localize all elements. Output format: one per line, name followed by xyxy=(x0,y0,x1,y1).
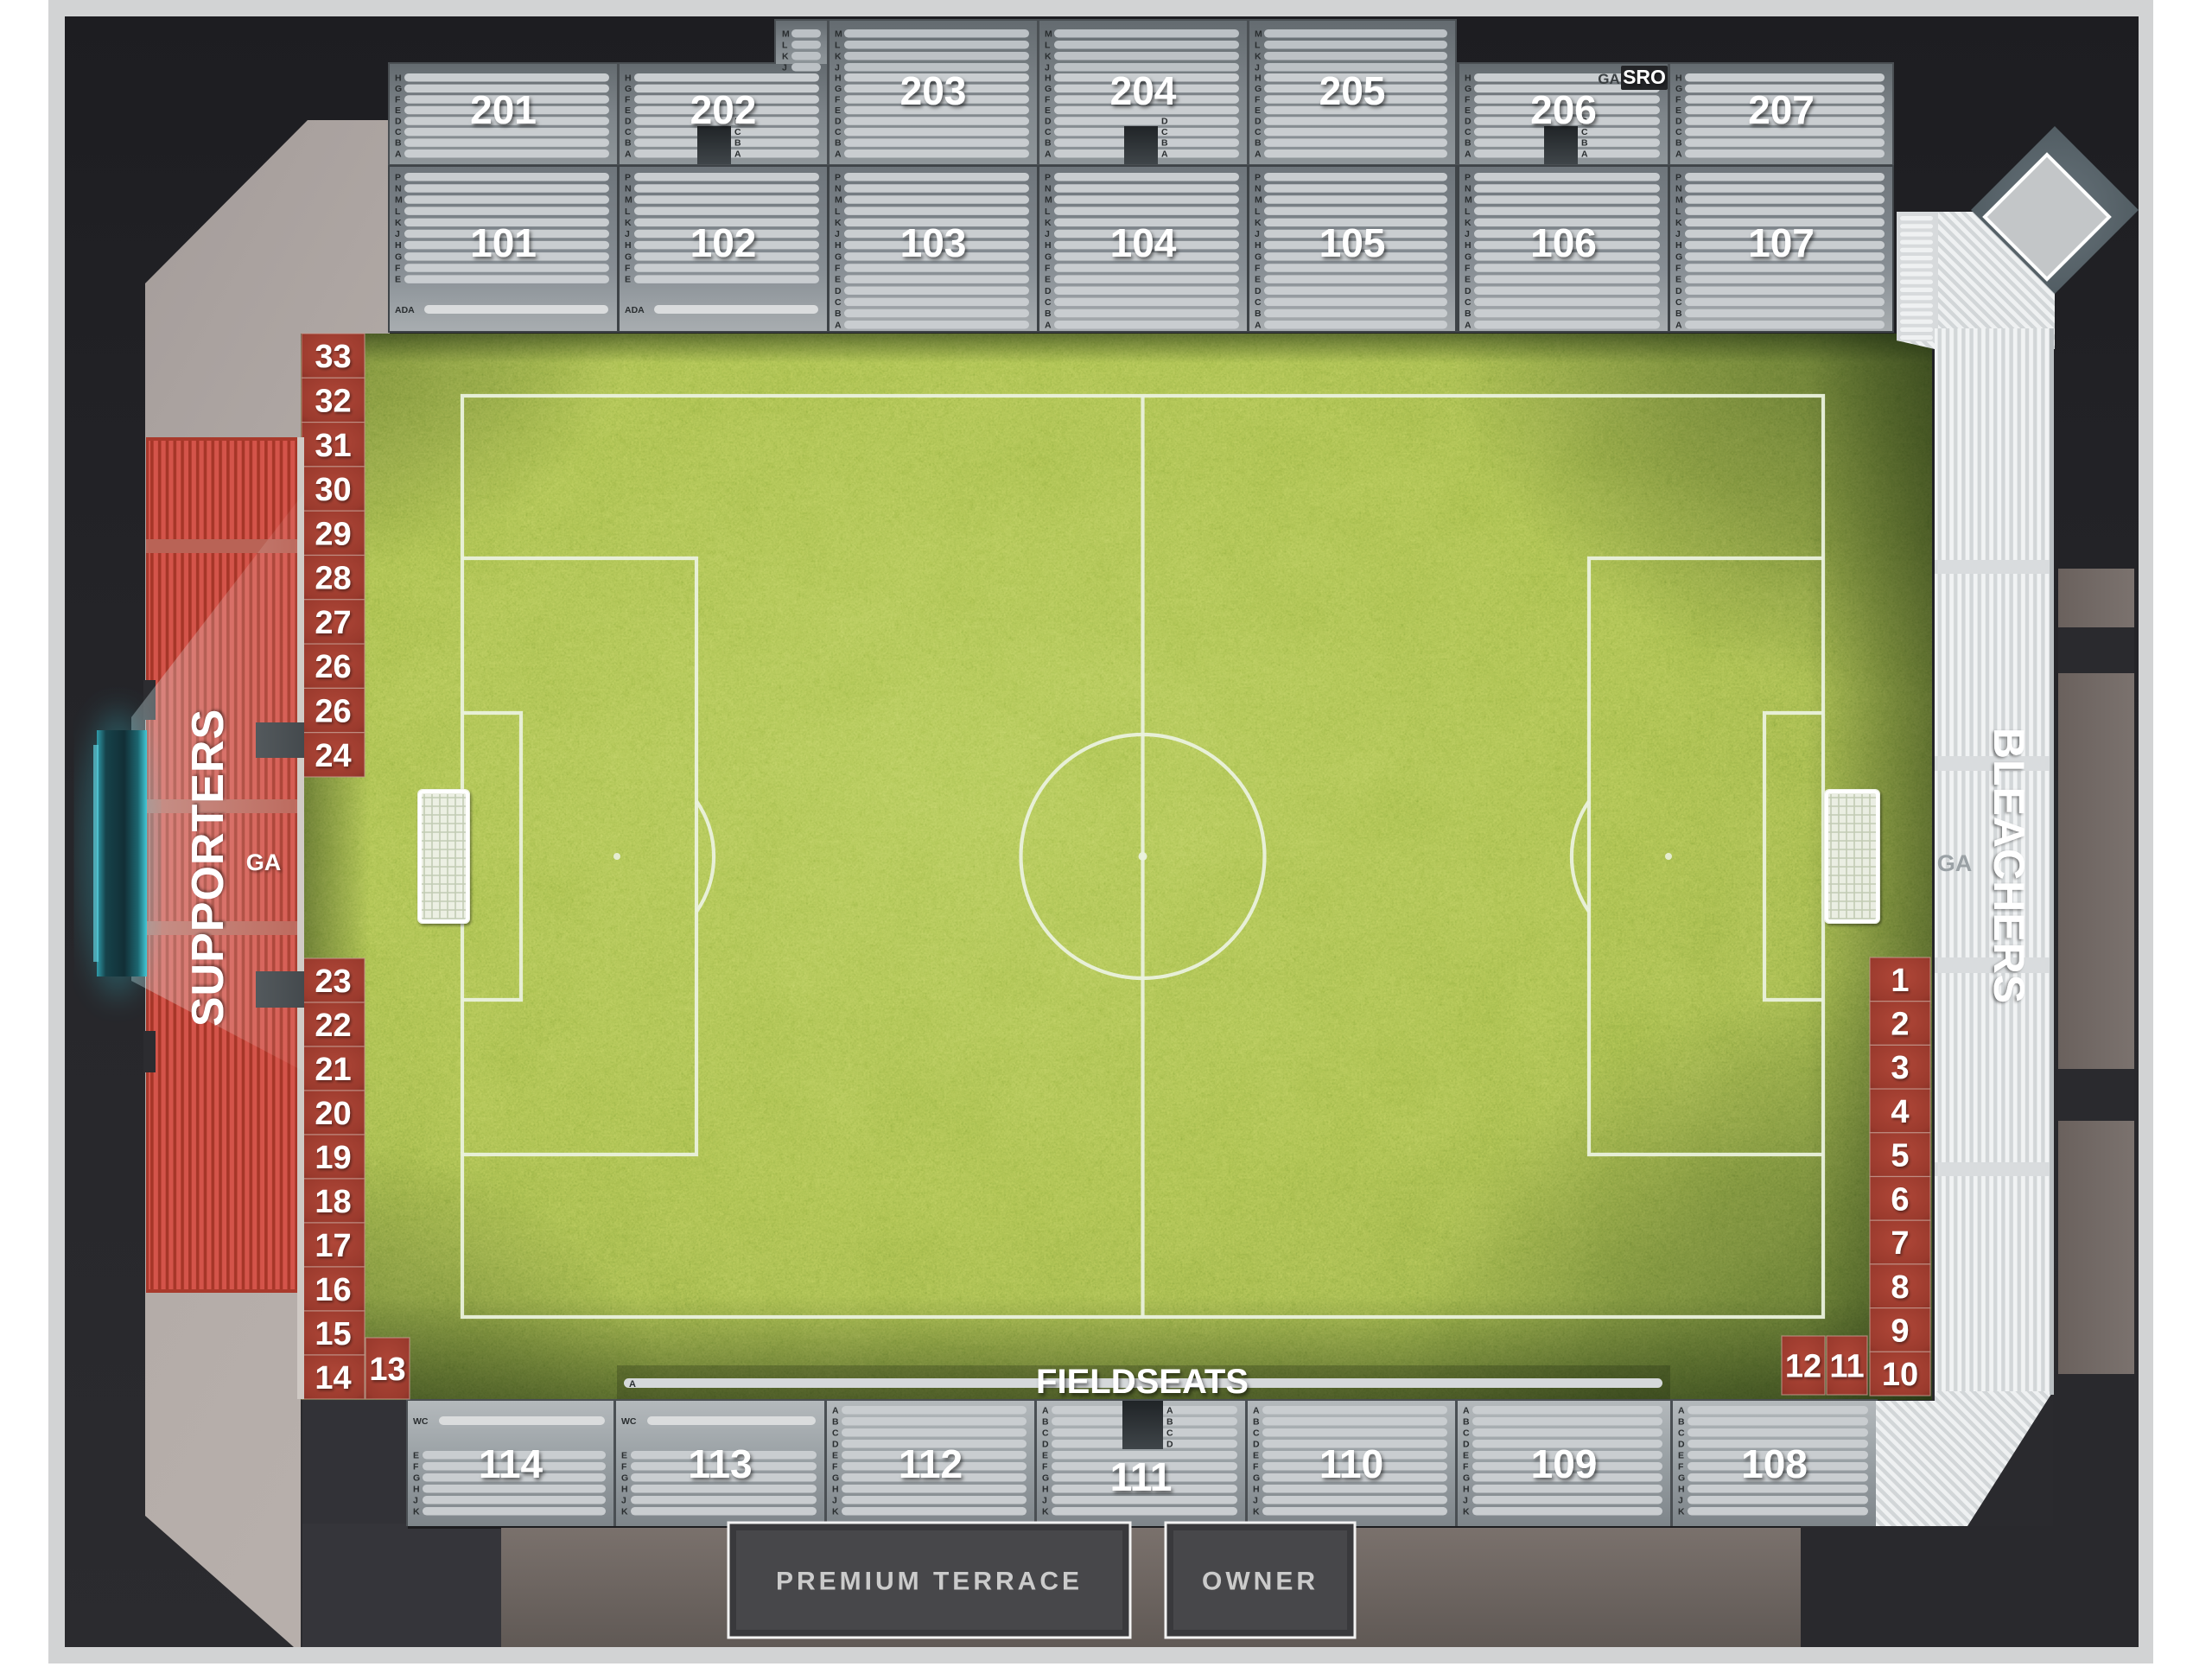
svg-text:H: H xyxy=(835,73,842,83)
svg-text:K: K xyxy=(835,51,842,61)
svg-text:14: 14 xyxy=(315,1360,351,1396)
svg-text:B: B xyxy=(1045,309,1052,319)
svg-text:L: L xyxy=(1675,207,1681,217)
svg-text:18: 18 xyxy=(315,1184,351,1220)
svg-text:N: N xyxy=(1255,184,1262,194)
svg-text:H: H xyxy=(395,73,402,83)
svg-text:P: P xyxy=(395,172,401,182)
svg-text:K: K xyxy=(1045,51,1052,61)
svg-text:F: F xyxy=(625,95,631,105)
svg-text:K: K xyxy=(782,51,789,61)
svg-text:K: K xyxy=(1255,51,1262,61)
svg-text:C: C xyxy=(832,1428,839,1438)
svg-text:D: D xyxy=(395,117,402,127)
svg-text:H: H xyxy=(625,240,632,251)
svg-text:E: E xyxy=(1255,275,1261,285)
svg-text:J: J xyxy=(782,62,787,73)
svg-text:204: 204 xyxy=(1110,68,1177,113)
svg-text:B: B xyxy=(1675,309,1682,319)
svg-text:L: L xyxy=(1255,40,1261,50)
svg-text:E: E xyxy=(835,105,841,116)
svg-text:PREMIUM TERRACE: PREMIUM TERRACE xyxy=(776,1568,1083,1596)
svg-text:D: D xyxy=(1678,1439,1685,1449)
svg-text:K: K xyxy=(1678,1506,1685,1517)
svg-text:103: 103 xyxy=(900,220,967,265)
svg-text:D: D xyxy=(1465,117,1471,127)
svg-text:K: K xyxy=(395,218,402,228)
svg-text:C: C xyxy=(1255,297,1262,308)
svg-text:K: K xyxy=(1465,218,1471,228)
svg-text:E: E xyxy=(1465,275,1471,285)
svg-text:F: F xyxy=(1678,1461,1684,1472)
svg-text:F: F xyxy=(1255,95,1261,105)
svg-text:F: F xyxy=(625,264,631,274)
svg-text:2: 2 xyxy=(1891,1007,1909,1043)
svg-text:M: M xyxy=(1465,195,1472,206)
svg-text:J: J xyxy=(1253,1495,1258,1505)
svg-text:7: 7 xyxy=(1891,1225,1909,1262)
svg-text:G: G xyxy=(625,84,632,94)
svg-text:111: 111 xyxy=(1110,1454,1173,1499)
svg-text:J: J xyxy=(1255,62,1260,73)
svg-text:J: J xyxy=(1675,229,1681,239)
svg-text:F: F xyxy=(1465,95,1471,105)
svg-text:D: D xyxy=(835,117,842,127)
svg-text:E: E xyxy=(413,1450,419,1460)
svg-text:107: 107 xyxy=(1748,220,1815,265)
svg-text:SUPPORTERS: SUPPORTERS xyxy=(183,709,233,1027)
svg-text:10: 10 xyxy=(1882,1357,1918,1393)
svg-text:M: M xyxy=(1045,195,1052,206)
svg-text:A: A xyxy=(1465,320,1471,330)
svg-text:3: 3 xyxy=(1891,1050,1909,1086)
svg-text:A: A xyxy=(1166,1405,1173,1415)
svg-text:P: P xyxy=(1465,172,1471,182)
svg-text:A: A xyxy=(1255,320,1262,330)
svg-text:E: E xyxy=(1675,105,1681,116)
svg-text:G: G xyxy=(1678,1473,1685,1483)
svg-text:M: M xyxy=(1255,195,1262,206)
svg-text:M: M xyxy=(835,29,842,39)
svg-text:B: B xyxy=(835,309,842,319)
svg-text:N: N xyxy=(1465,184,1471,194)
svg-text:J: J xyxy=(1045,62,1050,73)
svg-text:D: D xyxy=(625,117,632,127)
svg-text:K: K xyxy=(1675,218,1682,228)
svg-text:101: 101 xyxy=(470,220,537,265)
svg-text:C: C xyxy=(1463,1428,1470,1438)
svg-text:H: H xyxy=(395,240,402,251)
svg-text:F: F xyxy=(1045,95,1051,105)
svg-text:17: 17 xyxy=(315,1228,351,1264)
svg-text:6: 6 xyxy=(1891,1181,1909,1218)
svg-text:E: E xyxy=(835,275,841,285)
svg-text:F: F xyxy=(1253,1461,1259,1472)
svg-text:203: 203 xyxy=(900,68,967,113)
svg-text:F: F xyxy=(413,1461,419,1472)
svg-text:B: B xyxy=(1581,138,1588,149)
svg-text:F: F xyxy=(395,264,401,274)
svg-text:16: 16 xyxy=(315,1272,351,1308)
svg-text:D: D xyxy=(1255,286,1262,296)
svg-text:M: M xyxy=(625,195,632,206)
svg-text:C: C xyxy=(835,127,842,137)
svg-text:N: N xyxy=(395,184,402,194)
svg-text:L: L xyxy=(1465,207,1471,217)
svg-text:19: 19 xyxy=(315,1140,351,1176)
svg-text:N: N xyxy=(1045,184,1052,194)
svg-text:F: F xyxy=(835,264,841,274)
svg-text:A: A xyxy=(1581,149,1588,159)
svg-text:G: G xyxy=(1675,251,1682,262)
svg-text:K: K xyxy=(625,218,632,228)
svg-text:C: C xyxy=(1166,1428,1173,1438)
svg-text:FIELDSEATS: FIELDSEATS xyxy=(1036,1363,1249,1401)
svg-text:D: D xyxy=(832,1439,839,1449)
svg-text:15: 15 xyxy=(315,1316,351,1352)
svg-text:26: 26 xyxy=(315,649,351,685)
svg-text:A: A xyxy=(1675,320,1682,330)
svg-text:206: 206 xyxy=(1530,87,1597,132)
svg-text:J: J xyxy=(832,1495,837,1505)
svg-text:SRO: SRO xyxy=(1623,66,1666,88)
svg-text:20: 20 xyxy=(315,1096,351,1132)
svg-text:A: A xyxy=(395,149,402,159)
svg-text:L: L xyxy=(1255,207,1261,217)
svg-text:106: 106 xyxy=(1530,220,1597,265)
svg-text:K: K xyxy=(1255,218,1262,228)
svg-text:J: J xyxy=(1045,229,1050,239)
svg-text:P: P xyxy=(1045,172,1051,182)
svg-text:B: B xyxy=(1255,309,1262,319)
svg-text:L: L xyxy=(1045,40,1051,50)
svg-text:F: F xyxy=(1675,264,1681,274)
svg-text:B: B xyxy=(1463,1416,1470,1427)
svg-text:105: 105 xyxy=(1319,220,1386,265)
svg-text:D: D xyxy=(1465,286,1471,296)
svg-text:L: L xyxy=(395,207,401,217)
svg-text:C: C xyxy=(1045,297,1052,308)
svg-text:A: A xyxy=(1255,149,1262,159)
svg-text:K: K xyxy=(621,1506,628,1517)
svg-text:B: B xyxy=(1253,1416,1260,1427)
svg-text:E: E xyxy=(625,275,631,285)
svg-text:E: E xyxy=(1255,105,1261,116)
svg-text:N: N xyxy=(1675,184,1682,194)
svg-text:D: D xyxy=(1045,286,1052,296)
svg-text:D: D xyxy=(1255,117,1262,127)
svg-text:A: A xyxy=(1463,1405,1470,1415)
svg-text:B: B xyxy=(395,138,402,149)
svg-text:23: 23 xyxy=(315,964,351,1000)
svg-text:B: B xyxy=(1255,138,1262,149)
svg-text:H: H xyxy=(1042,1484,1049,1494)
svg-text:WC: WC xyxy=(621,1416,637,1427)
svg-text:GA: GA xyxy=(1937,850,1973,876)
svg-text:J: J xyxy=(413,1495,418,1505)
svg-text:32: 32 xyxy=(315,384,351,420)
svg-text:A: A xyxy=(835,320,842,330)
svg-text:H: H xyxy=(1678,1484,1685,1494)
svg-text:F: F xyxy=(395,95,401,105)
svg-text:G: G xyxy=(835,251,842,262)
svg-text:A: A xyxy=(1045,149,1052,159)
svg-text:GA: GA xyxy=(1598,71,1620,87)
svg-text:F: F xyxy=(1465,264,1471,274)
svg-text:A: A xyxy=(832,1405,839,1415)
svg-text:H: H xyxy=(1465,73,1471,83)
svg-text:C: C xyxy=(1465,127,1471,137)
svg-text:A: A xyxy=(734,149,741,159)
svg-text:5: 5 xyxy=(1891,1138,1909,1174)
svg-text:C: C xyxy=(1675,127,1682,137)
svg-text:B: B xyxy=(1045,138,1052,149)
svg-text:OWNER: OWNER xyxy=(1202,1568,1319,1596)
svg-text:24: 24 xyxy=(315,738,351,774)
svg-text:H: H xyxy=(1255,73,1262,83)
svg-text:F: F xyxy=(1255,264,1261,274)
svg-text:F: F xyxy=(1045,264,1051,274)
svg-text:E: E xyxy=(395,275,401,285)
svg-text:27: 27 xyxy=(315,605,351,641)
svg-text:A: A xyxy=(1465,149,1471,159)
svg-text:202: 202 xyxy=(690,87,757,132)
svg-text:109: 109 xyxy=(1531,1441,1598,1486)
svg-text:13: 13 xyxy=(369,1352,405,1388)
svg-text:G: G xyxy=(1463,1473,1470,1483)
svg-text:J: J xyxy=(835,62,840,73)
svg-text:11: 11 xyxy=(1829,1349,1864,1385)
svg-text:H: H xyxy=(1045,73,1052,83)
svg-text:G: G xyxy=(395,84,402,94)
svg-text:D: D xyxy=(1045,117,1052,127)
svg-text:K: K xyxy=(1042,1506,1049,1517)
svg-text:C: C xyxy=(1675,297,1682,308)
svg-text:WC: WC xyxy=(413,1416,429,1427)
svg-text:M: M xyxy=(782,29,790,39)
svg-text:E: E xyxy=(1253,1450,1259,1460)
svg-text:B: B xyxy=(832,1416,839,1427)
svg-text:N: N xyxy=(625,184,632,194)
svg-text:31: 31 xyxy=(315,428,351,464)
svg-text:A: A xyxy=(835,149,842,159)
svg-text:F: F xyxy=(621,1461,627,1472)
svg-text:K: K xyxy=(835,218,842,228)
svg-text:C: C xyxy=(625,127,632,137)
svg-text:P: P xyxy=(1675,172,1681,182)
svg-text:E: E xyxy=(1465,105,1471,116)
svg-text:J: J xyxy=(621,1495,626,1505)
svg-text:K: K xyxy=(832,1506,839,1517)
svg-text:G: G xyxy=(835,84,842,94)
svg-text:H: H xyxy=(1255,240,1262,251)
svg-text:C: C xyxy=(1161,127,1168,137)
svg-text:E: E xyxy=(1045,275,1051,285)
svg-text:P: P xyxy=(1255,172,1261,182)
svg-text:C: C xyxy=(1253,1428,1260,1438)
svg-text:ADA: ADA xyxy=(625,305,645,315)
svg-text:D: D xyxy=(1675,286,1682,296)
svg-text:J: J xyxy=(625,229,630,239)
svg-text:C: C xyxy=(1465,297,1471,308)
svg-text:M: M xyxy=(395,195,403,206)
svg-text:N: N xyxy=(835,184,842,194)
svg-text:K: K xyxy=(1463,1506,1470,1517)
svg-text:205: 205 xyxy=(1319,68,1386,113)
svg-text:22: 22 xyxy=(315,1008,351,1044)
svg-text:K: K xyxy=(1253,1506,1260,1517)
svg-text:C: C xyxy=(395,127,402,137)
svg-text:26: 26 xyxy=(315,694,351,730)
svg-text:L: L xyxy=(782,40,788,50)
svg-text:C: C xyxy=(1042,1428,1049,1438)
svg-text:H: H xyxy=(1675,240,1682,251)
svg-text:M: M xyxy=(835,195,842,206)
svg-text:B: B xyxy=(1166,1416,1173,1427)
svg-text:G: G xyxy=(1255,84,1262,94)
svg-text:C: C xyxy=(1255,127,1262,137)
svg-text:C: C xyxy=(1045,127,1052,137)
svg-text:F: F xyxy=(1463,1461,1469,1472)
svg-text:A: A xyxy=(1045,320,1052,330)
svg-text:J: J xyxy=(1255,229,1260,239)
svg-text:E: E xyxy=(1463,1450,1469,1460)
svg-text:D: D xyxy=(835,286,842,296)
svg-text:J: J xyxy=(1463,1495,1468,1505)
svg-text:K: K xyxy=(413,1506,420,1517)
svg-text:A: A xyxy=(1675,149,1682,159)
svg-text:207: 207 xyxy=(1748,87,1815,132)
svg-text:M: M xyxy=(1675,195,1683,206)
svg-text:102: 102 xyxy=(690,220,757,265)
svg-text:G: G xyxy=(832,1473,839,1483)
svg-text:E: E xyxy=(395,105,401,116)
svg-text:G: G xyxy=(413,1473,420,1483)
svg-text:H: H xyxy=(621,1484,628,1494)
svg-text:H: H xyxy=(1253,1484,1260,1494)
svg-text:110: 110 xyxy=(1319,1441,1383,1486)
svg-text:D: D xyxy=(1463,1439,1470,1449)
svg-text:E: E xyxy=(1675,275,1681,285)
svg-text:D: D xyxy=(1675,117,1682,127)
svg-text:J: J xyxy=(1042,1495,1047,1505)
svg-text:GA: GA xyxy=(246,849,282,875)
svg-text:B: B xyxy=(1465,138,1471,149)
svg-text:H: H xyxy=(1045,240,1052,251)
svg-text:H: H xyxy=(625,73,632,83)
svg-text:L: L xyxy=(835,40,841,50)
svg-text:E: E xyxy=(625,105,631,116)
svg-text:J: J xyxy=(835,229,840,239)
svg-text:ADA: ADA xyxy=(395,305,415,315)
svg-text:B: B xyxy=(835,138,842,149)
svg-text:D: D xyxy=(1161,117,1168,127)
svg-text:K: K xyxy=(1045,218,1052,228)
svg-text:30: 30 xyxy=(315,472,351,508)
svg-text:E: E xyxy=(1045,105,1051,116)
svg-text:H: H xyxy=(1465,240,1471,251)
svg-text:J: J xyxy=(395,229,400,239)
svg-text:C: C xyxy=(835,297,842,308)
svg-text:B: B xyxy=(625,138,632,149)
svg-text:F: F xyxy=(1042,1461,1048,1472)
svg-text:J: J xyxy=(1678,1495,1683,1505)
svg-text:BLEACHERS: BLEACHERS xyxy=(1985,728,2033,1004)
svg-text:104: 104 xyxy=(1110,220,1177,265)
svg-text:L: L xyxy=(1045,207,1051,217)
svg-text:29: 29 xyxy=(315,516,351,552)
svg-text:B: B xyxy=(1675,138,1682,149)
svg-text:G: G xyxy=(1253,1473,1260,1483)
svg-text:J: J xyxy=(1465,229,1470,239)
svg-text:A: A xyxy=(1042,1405,1049,1415)
svg-text:B: B xyxy=(1465,309,1471,319)
svg-text:108: 108 xyxy=(1741,1441,1808,1486)
svg-text:G: G xyxy=(1465,251,1471,262)
svg-text:113: 113 xyxy=(688,1441,752,1486)
svg-text:E: E xyxy=(832,1450,838,1460)
svg-text:P: P xyxy=(835,172,841,182)
svg-text:B: B xyxy=(734,138,741,149)
svg-text:C: C xyxy=(1678,1428,1685,1438)
svg-text:H: H xyxy=(1463,1484,1470,1494)
svg-text:G: G xyxy=(1045,84,1052,94)
svg-text:201: 201 xyxy=(470,87,537,132)
svg-text:G: G xyxy=(1465,84,1471,94)
svg-text:12: 12 xyxy=(1785,1349,1821,1385)
svg-text:A: A xyxy=(1678,1405,1685,1415)
svg-text:9: 9 xyxy=(1891,1313,1909,1349)
svg-text:28: 28 xyxy=(315,561,351,597)
svg-text:A: A xyxy=(1253,1405,1260,1415)
svg-text:G: G xyxy=(1042,1473,1049,1483)
svg-text:G: G xyxy=(621,1473,628,1483)
svg-text:D: D xyxy=(1166,1439,1173,1449)
svg-text:F: F xyxy=(835,95,841,105)
svg-text:B: B xyxy=(1161,138,1168,149)
svg-text:E: E xyxy=(1042,1450,1048,1460)
svg-text:L: L xyxy=(835,207,841,217)
svg-text:A: A xyxy=(1161,149,1168,159)
svg-text:4: 4 xyxy=(1891,1094,1909,1130)
svg-text:A: A xyxy=(625,149,632,159)
svg-text:B: B xyxy=(1678,1416,1685,1427)
svg-text:B: B xyxy=(1042,1416,1049,1427)
svg-text:P: P xyxy=(625,172,631,182)
svg-text:112: 112 xyxy=(899,1441,963,1486)
svg-text:33: 33 xyxy=(315,339,351,375)
svg-text:114: 114 xyxy=(479,1441,543,1486)
svg-text:L: L xyxy=(625,207,631,217)
svg-text:F: F xyxy=(1675,95,1681,105)
svg-text:F: F xyxy=(832,1461,838,1472)
svg-text:8: 8 xyxy=(1891,1269,1909,1306)
svg-text:E: E xyxy=(621,1450,627,1460)
svg-text:21: 21 xyxy=(315,1052,351,1088)
svg-text:G: G xyxy=(395,251,402,262)
svg-text:A: A xyxy=(629,1379,636,1390)
svg-text:E: E xyxy=(1678,1450,1684,1460)
svg-text:D: D xyxy=(1253,1439,1260,1449)
svg-text:H: H xyxy=(413,1484,420,1494)
svg-text:G: G xyxy=(1675,84,1682,94)
svg-text:H: H xyxy=(1675,73,1682,83)
svg-text:G: G xyxy=(625,251,632,262)
svg-text:G: G xyxy=(1255,251,1262,262)
svg-text:D: D xyxy=(1042,1439,1049,1449)
svg-text:M: M xyxy=(1255,29,1262,39)
svg-text:M: M xyxy=(1045,29,1052,39)
